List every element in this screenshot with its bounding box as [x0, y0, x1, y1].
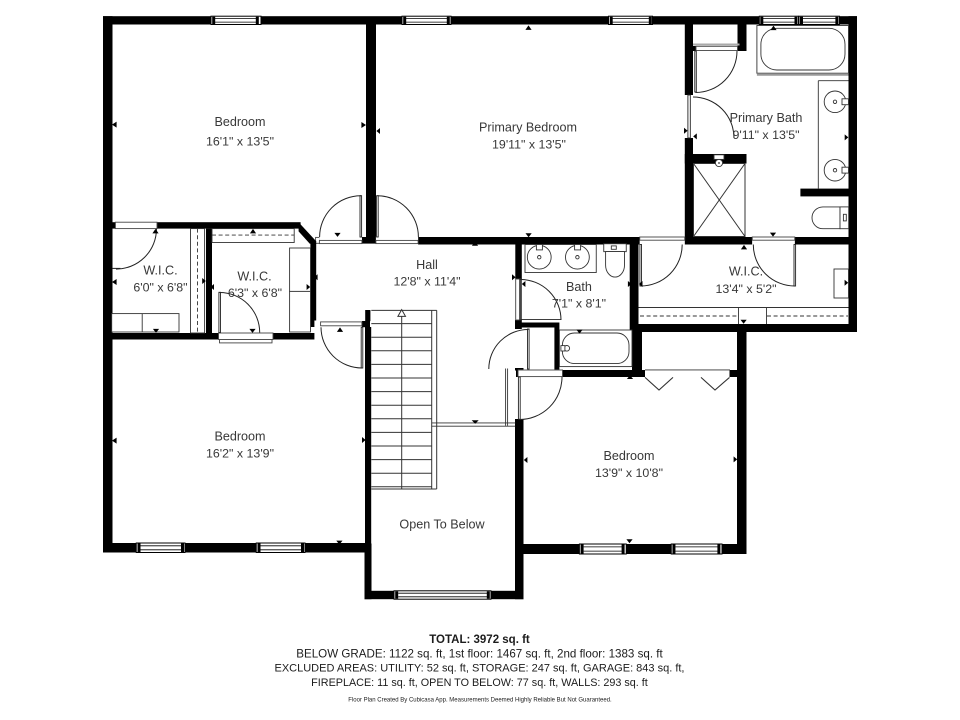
svg-text:12'8" x 11'4": 12'8" x 11'4" — [393, 275, 460, 289]
svg-text:Hall: Hall — [416, 258, 438, 272]
svg-text:16'2" x 13'9": 16'2" x 13'9" — [206, 447, 274, 461]
svg-text:Bedroom: Bedroom — [603, 449, 654, 463]
svg-text:13'4" x 5'2": 13'4" x 5'2" — [715, 282, 776, 296]
svg-text:6'0" x 6'8": 6'0" x 6'8" — [133, 281, 187, 295]
svg-text:16'1" x 13'5": 16'1" x 13'5" — [206, 135, 274, 149]
svg-text:EXCLUDED AREAS: UTILITY: 52 sq: EXCLUDED AREAS: UTILITY: 52 sq. ft, STOR… — [274, 663, 684, 675]
svg-text:Open To Below: Open To Below — [399, 518, 485, 532]
svg-text:Primary Bedroom: Primary Bedroom — [479, 121, 577, 135]
svg-text:6'3" x 6'8": 6'3" x 6'8" — [228, 286, 282, 300]
svg-text:W.I.C.: W.I.C. — [143, 264, 177, 278]
svg-text:13'9" x 10'8": 13'9" x 10'8" — [595, 466, 663, 480]
svg-text:7'1" x 8'1": 7'1" x 8'1" — [552, 297, 606, 311]
svg-text:FIREPLACE: 11 sq. ft, OPEN TO: FIREPLACE: 11 sq. ft, OPEN TO BELOW: 77 … — [311, 677, 648, 689]
svg-text:9'11" x 13'5": 9'11" x 13'5" — [732, 128, 799, 142]
svg-text:Bedroom: Bedroom — [214, 115, 265, 129]
svg-text:Primary Bath: Primary Bath — [730, 111, 803, 125]
svg-text:Bath: Bath — [566, 280, 592, 294]
svg-text:W.I.C.: W.I.C. — [729, 265, 763, 279]
svg-text:TOTAL: 3972 sq. ft: TOTAL: 3972 sq. ft — [429, 634, 530, 646]
svg-text:Floor Plan Created By Cubicasa: Floor Plan Created By Cubicasa App. Meas… — [348, 698, 612, 704]
svg-text:BELOW GRADE: 1122 sq. ft, 1st: BELOW GRADE: 1122 sq. ft, 1st floor: 146… — [296, 647, 663, 660]
svg-text:Bedroom: Bedroom — [214, 430, 265, 444]
svg-text:W.I.C.: W.I.C. — [237, 270, 271, 284]
svg-text:19'11" x 13'5": 19'11" x 13'5" — [492, 138, 566, 152]
